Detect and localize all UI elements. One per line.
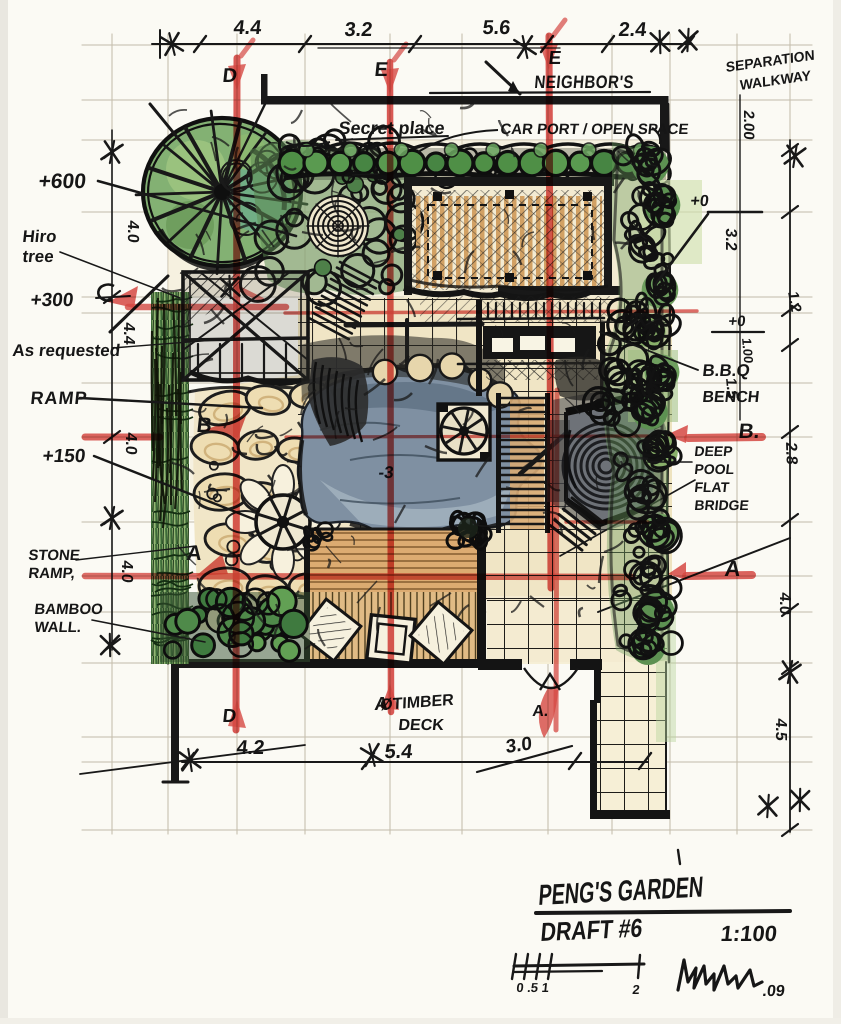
svg-text:1.2: 1.2: [784, 291, 805, 313]
svg-text:+300: +300: [29, 290, 74, 311]
svg-text:1.00: 1.00: [739, 338, 756, 363]
svg-text:CAR PORT / OPEN SPACE: CAR PORT / OPEN SPACE: [500, 121, 690, 138]
svg-text:BRIDGE: BRIDGE: [694, 497, 750, 513]
svg-text:A: A: [185, 542, 203, 565]
svg-text:DECK: DECK: [398, 716, 446, 734]
svg-text:2.00: 2.00: [740, 110, 757, 141]
svg-text:As requested: As requested: [12, 341, 122, 360]
svg-text:B: B: [195, 414, 213, 437]
svg-text:FLAT: FLAT: [694, 479, 731, 495]
svg-text:3.2: 3.2: [722, 228, 740, 252]
svg-text:RAMP,: RAMP,: [28, 565, 76, 582]
svg-text:0 .5 1: 0 .5 1: [516, 980, 550, 995]
svg-text:+150: +150: [41, 446, 86, 467]
svg-text:4.0: 4.0: [776, 592, 794, 616]
svg-text:DRAFT #6: DRAFT #6: [539, 914, 643, 948]
svg-text:BENCH: BENCH: [702, 388, 761, 406]
svg-text:+0: +0: [728, 313, 747, 330]
svg-text:+0: +0: [690, 192, 710, 210]
svg-text:WALL.: WALL.: [34, 619, 82, 636]
svg-text:2.8: 2.8: [782, 442, 801, 466]
svg-text:4.4: 4.4: [120, 322, 138, 346]
svg-text:Hiro: Hiro: [22, 227, 58, 246]
svg-text:5.6: 5.6: [481, 17, 511, 39]
svg-text:+600: +600: [37, 170, 87, 193]
svg-text:5.4: 5.4: [383, 741, 414, 763]
svg-text:3.2: 3.2: [343, 19, 373, 41]
svg-text:4.2: 4.2: [235, 737, 265, 759]
svg-text:3.0: 3.0: [505, 733, 532, 758]
svg-text:STONE: STONE: [28, 547, 81, 564]
svg-text:4.0: 4.0: [118, 560, 136, 584]
svg-text:DEEP: DEEP: [694, 443, 734, 459]
svg-text:tree: tree: [22, 247, 55, 266]
svg-text:POOL: POOL: [694, 461, 736, 477]
svg-text:4.5: 4.5: [772, 718, 790, 742]
svg-text:4.0: 4.0: [124, 220, 142, 244]
svg-text:BAMBOO: BAMBOO: [34, 601, 104, 618]
svg-text:4.4: 4.4: [232, 17, 263, 39]
svg-text:B.B.Q: B.B.Q: [702, 361, 751, 380]
svg-text:1:100: 1:100: [719, 921, 778, 946]
svg-text:2.4: 2.4: [617, 19, 648, 41]
svg-text:.09: .09: [762, 982, 786, 1000]
